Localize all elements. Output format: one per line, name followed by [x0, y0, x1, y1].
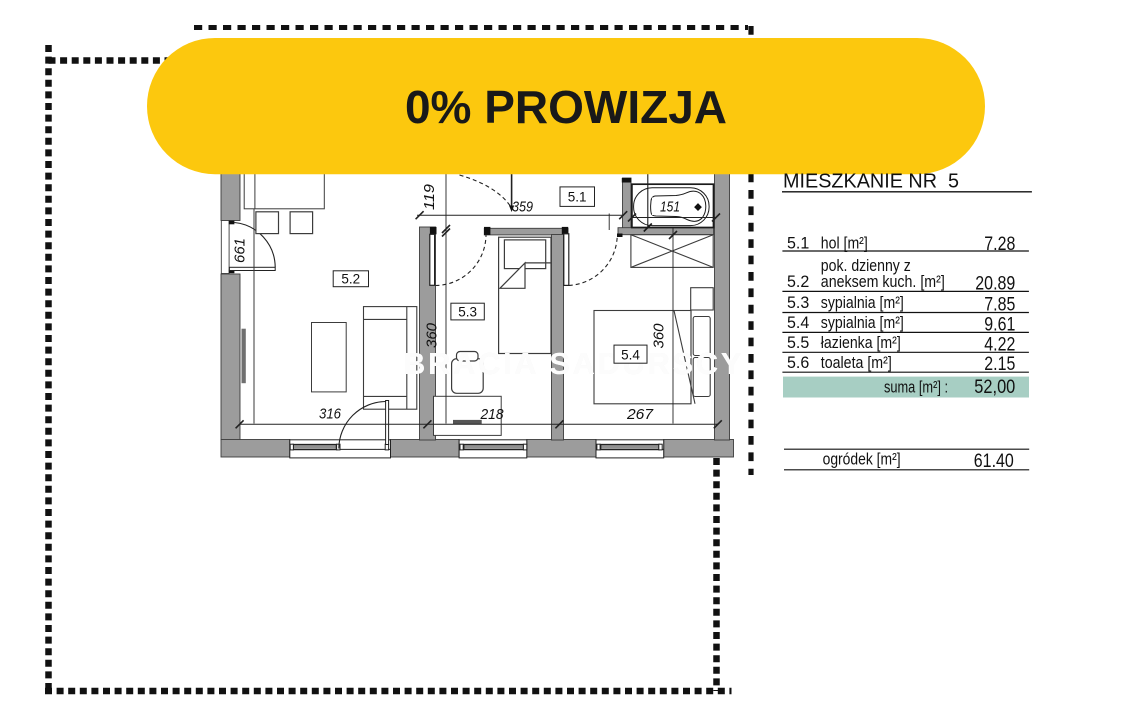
svg-text:aneksem kuch. [m²]: aneksem kuch. [m²]	[821, 272, 945, 291]
svg-text:316: 316	[319, 405, 342, 422]
svg-text:5.5: 5.5	[787, 333, 809, 352]
svg-text:5.3: 5.3	[458, 305, 477, 320]
svg-text:360: 360	[652, 324, 668, 349]
svg-text:5.3: 5.3	[787, 293, 809, 312]
svg-text:ogródek [m²]: ogródek [m²]	[823, 450, 901, 469]
svg-text:5.1: 5.1	[568, 190, 587, 205]
svg-text:661: 661	[233, 238, 249, 263]
svg-text:360: 360	[425, 323, 441, 348]
svg-text:hol [m²]: hol [m²]	[821, 234, 868, 253]
svg-text:łazienka [m²]: łazienka [m²]	[821, 333, 901, 352]
svg-text:5.2: 5.2	[341, 272, 360, 287]
svg-text:119: 119	[422, 184, 438, 210]
svg-text:151: 151	[660, 200, 680, 216]
svg-text:267: 267	[626, 406, 654, 423]
svg-text:toaleta [m²]: toaleta [m²]	[821, 353, 892, 372]
svg-text:52,00: 52,00	[974, 376, 1015, 398]
svg-text:0% PROWIZJA: 0% PROWIZJA	[405, 81, 727, 133]
svg-text:BRACIA SADURSCY: BRACIA SADURSCY	[403, 346, 744, 381]
svg-text:5.6: 5.6	[787, 353, 809, 372]
svg-text:sypialnia [m²]: sypialnia [m²]	[821, 293, 904, 312]
svg-text:sypialnia [m²]: sypialnia [m²]	[821, 313, 904, 332]
svg-text:5.2: 5.2	[787, 272, 809, 291]
svg-text:5.4: 5.4	[787, 313, 809, 332]
svg-text:5.4: 5.4	[621, 348, 640, 363]
svg-text:MIESZKANIE NR 5: MIESZKANIE NR 5	[783, 171, 959, 193]
svg-text:359: 359	[512, 199, 534, 216]
svg-text:5.1: 5.1	[787, 234, 809, 253]
svg-text:7.28: 7.28	[984, 233, 1015, 255]
svg-text:218: 218	[480, 406, 505, 423]
svg-text:suma [m²] :: suma [m²] :	[884, 377, 948, 396]
svg-text:61.40: 61.40	[974, 450, 1014, 472]
